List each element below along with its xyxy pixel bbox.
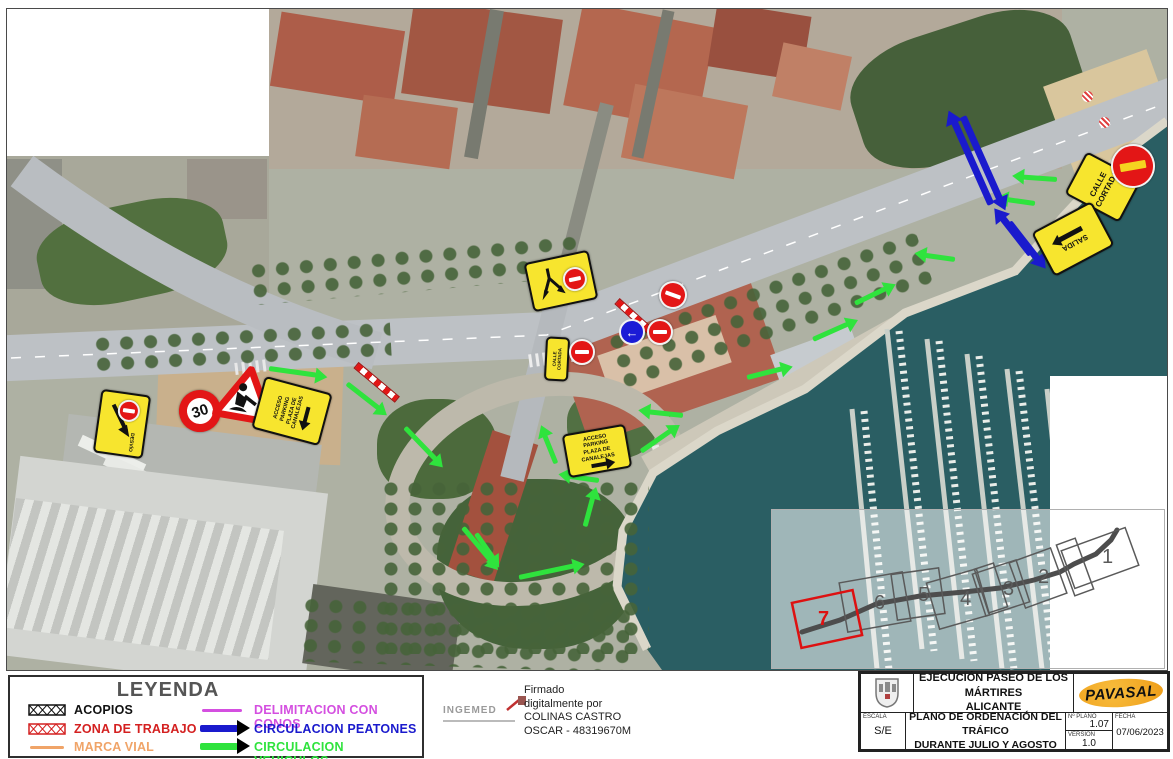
legend-label-vehiculos: CIRCULACION VEHICULOS — [254, 740, 422, 759]
pavasal-logo-cell: PAVASAL — [1073, 673, 1168, 713]
version-value: 1.0 — [1066, 738, 1112, 749]
street-closed-label: CALLE CORTADA — [551, 341, 563, 377]
acopios-hatch-icon — [28, 704, 66, 716]
index-label-7: 7 — [818, 608, 829, 631]
ingemed-tagline-bar — [443, 720, 515, 722]
index-label-4: 4 — [960, 588, 971, 611]
version-cell: VERSIÓN 1.0 — [1065, 730, 1113, 750]
cones-line-icon — [202, 709, 242, 712]
index-label-5: 5 — [918, 584, 929, 607]
beach-umbrella — [1099, 117, 1110, 128]
legend-label-marca-vial: MARCA VIAL — [74, 740, 154, 754]
scale-cell: ESCALA S/E — [860, 712, 906, 750]
beach-umbrella — [1082, 91, 1093, 102]
sign-arrow-icon — [302, 407, 310, 423]
project-title: EJECUCIÓN PASEO DE LOS MÁRTIRES ALICANTE — [913, 673, 1074, 713]
scale-value: S/E — [861, 725, 905, 737]
index-label-1: 1 — [1102, 546, 1113, 569]
title-block: EJECUCIÓN PASEO DE LOS MÁRTIRES ALICANTE… — [858, 671, 1170, 752]
detour-sign: DESVÍO — [93, 389, 151, 459]
speed-limit-value: 30 — [189, 400, 210, 421]
pedestrian-arrow-icon — [200, 725, 238, 732]
marca-vial-line-icon — [30, 746, 64, 749]
date-cell: FECHA 07/06/2023 — [1112, 712, 1168, 750]
index-box-1 — [1061, 528, 1139, 589]
legend-label-peatones: CIRCULACION PEATONES — [254, 722, 417, 736]
alicante-crest-icon — [873, 677, 901, 709]
scale-label: ESCALA — [863, 714, 887, 720]
mandatory-left-sign-icon: ← — [619, 319, 645, 345]
plan-number-cell: Nº PLANO 1.07 — [1065, 712, 1113, 731]
city-crest-cell — [860, 673, 914, 713]
index-label-2: 2 — [1038, 566, 1049, 589]
pavasal-logo-text: PAVASAL — [1084, 682, 1157, 704]
legend-label-zona-trabajo: ZONA DE TRABAJO — [74, 722, 197, 736]
map-cutout-top-left — [7, 9, 269, 156]
date-value: 07/06/2023 — [1113, 727, 1167, 738]
plan-sheet: 1 2 3 4 5 6 7 — [0, 0, 1173, 759]
tree-row — [298, 595, 630, 671]
zona-trabajo-hatch-icon — [28, 723, 66, 735]
no-entry-sign-icon — [647, 319, 673, 345]
ingemed-logo: INGEMED — [443, 700, 521, 722]
legend-title: LEYENDA — [98, 679, 238, 702]
digital-signature-text: Firmado digitalmente por COLINAS CASTRO … — [524, 684, 664, 738]
index-label-6: 6 — [874, 592, 885, 615]
parking-access-label: ACCESO PARKING PLAZA DE CANALEJAS — [565, 430, 629, 466]
street-closed-sign: CALLE CORTADA — [544, 336, 570, 381]
index-label-3: 3 — [1003, 578, 1014, 601]
aerial-map: 1 2 3 4 5 6 7 — [6, 8, 1168, 671]
ingemed-logo-text: INGEMED — [443, 705, 497, 716]
legend-box: LEYENDA ACOPIOS ZONA DE TRABAJO MARCA VI… — [8, 675, 424, 758]
legend-label-acopios: ACOPIOS — [74, 703, 133, 717]
drawing-title: PLANO DE ORDENACIÓN DEL TRÁFICO DURANTE … — [905, 712, 1066, 750]
pavasal-logo: PAVASAL — [1078, 676, 1164, 710]
sign-arrow-icon — [591, 462, 607, 469]
no-entry-sign-icon — [569, 339, 595, 365]
plan-number-value: 1.07 — [1090, 719, 1109, 730]
vehicle-arrow-icon — [200, 743, 238, 750]
date-label: FECHA — [1115, 714, 1135, 720]
plan-index-overlay: 1 2 3 4 5 6 7 — [771, 509, 1165, 669]
